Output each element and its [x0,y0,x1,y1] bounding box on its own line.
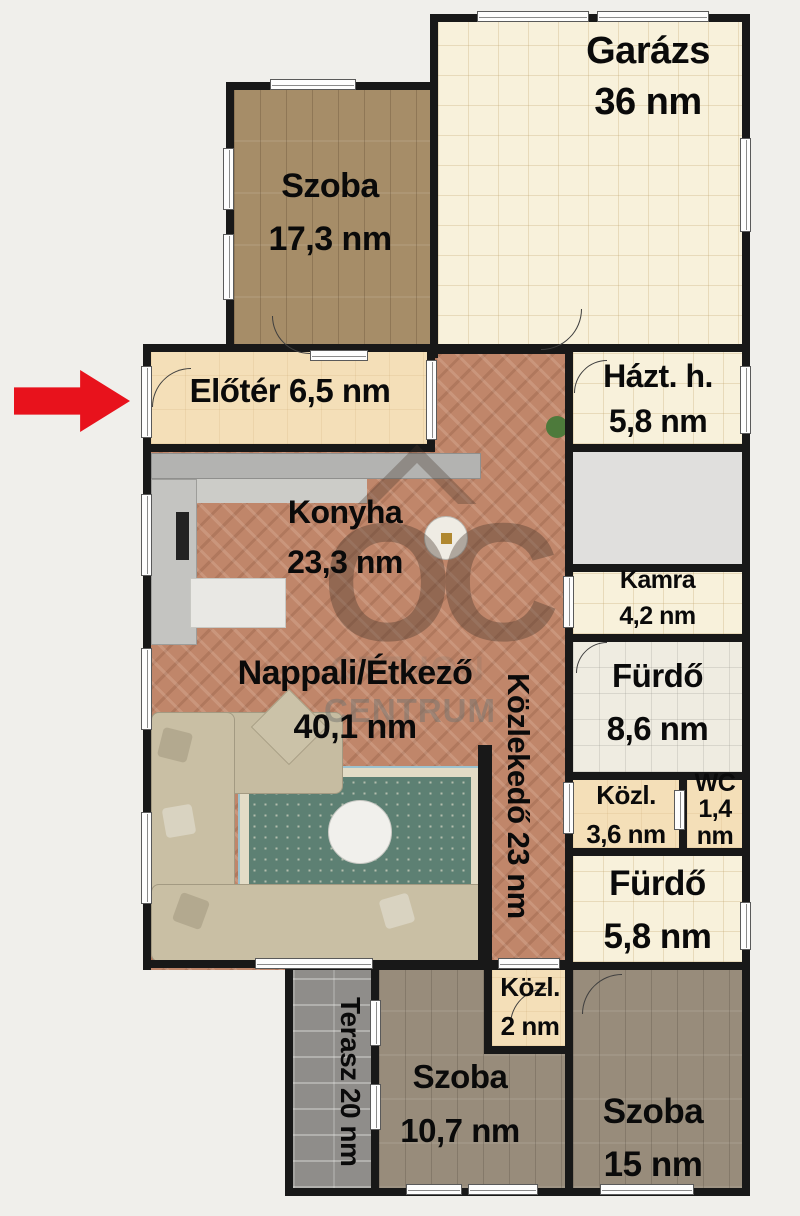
room-label-hazt-h: Házt. h. 5,8 nm [572,354,744,444]
window [740,902,751,950]
room-label-terasz: Terasz 20 nm [334,972,366,1192]
window [141,648,152,730]
room-label-eloter: Előtér 6,5 nm [150,372,430,410]
window [477,11,589,22]
window [310,350,368,361]
window [223,234,234,300]
room-label-szoba-107: Szoba 10,7 nm [380,1050,540,1159]
room-label-kamra: Kamra 4,2 nm [580,562,735,635]
door-opening [563,576,574,628]
window [141,812,152,904]
wall-living-corridor-partition [478,745,492,968]
window [406,1184,462,1195]
window [141,494,152,576]
floor-plan: OC OTTHON CENTRUM Szoba 17,3 nm Garázs 3… [0,0,800,1216]
room-label-kozl-2: Közl. 2 nm [486,968,574,1046]
room-stairwell [565,444,750,572]
window [597,11,709,22]
window [223,148,234,210]
room-label-szoba-15: Szoba 15 nm [578,1086,728,1191]
room-label-nappali: Nappali/Étkező 40,1 nm [200,646,510,755]
room-label-kozl-36: Közl. 3,6 nm [570,776,682,854]
entrance-arrow-icon [14,370,130,432]
window [468,1184,538,1195]
coffee-table [328,800,392,864]
window [270,79,356,90]
room-label-furdo-58: Fürdő 5,8 nm [575,858,740,963]
window [370,1000,381,1046]
cushion [162,804,197,839]
window [740,138,751,232]
room-label-wc: WC 1,4 nm [684,770,746,849]
room-label-garazs: Garázs 36 nm [548,26,748,129]
room-label-konyha: Konyha 23,3 nm [250,488,440,587]
room-label-furdo-86: Fürdő 8,6 nm [580,650,735,756]
room-label-kozlekedo: Közlekedő 23 nm [500,636,536,956]
window [255,958,373,969]
room-label-szoba-17: Szoba 17,3 nm [240,160,420,265]
stove [176,512,189,560]
